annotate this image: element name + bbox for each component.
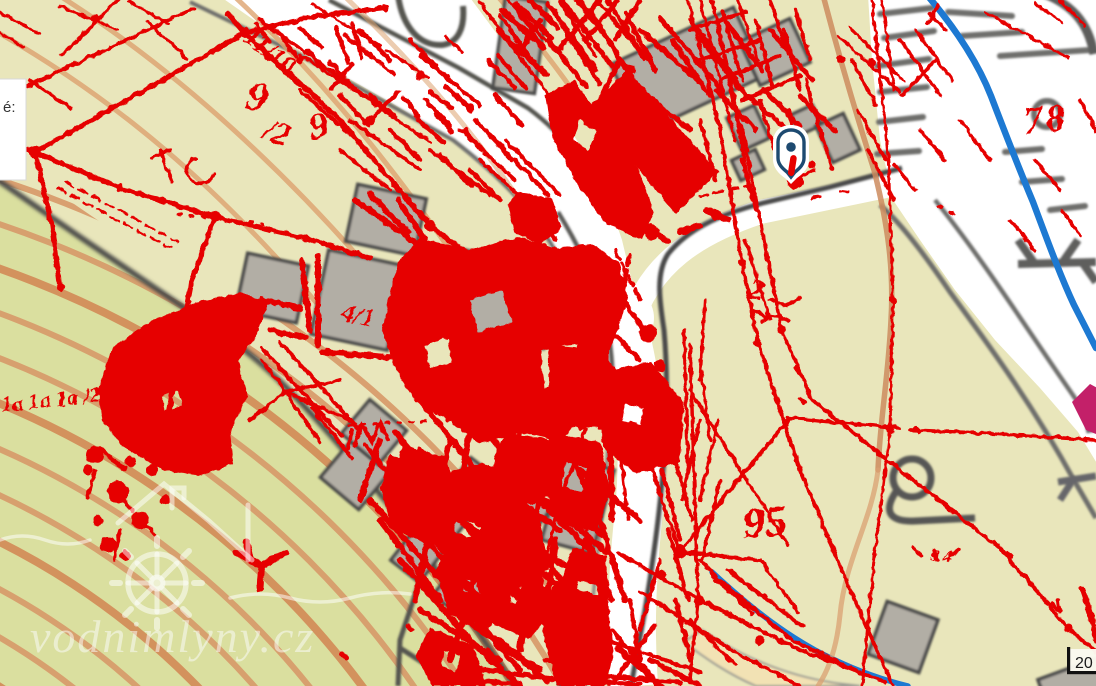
svg-text:vodnimlyny.cz: vodnimlyny.cz: [30, 611, 315, 662]
svg-text:78: 78: [1022, 97, 1070, 143]
svg-text:é:: é:: [3, 99, 16, 116]
svg-text:9 4: 9 4: [929, 545, 953, 567]
svg-text:95: 95: [741, 496, 788, 548]
svg-text:20: 20: [1075, 655, 1093, 672]
